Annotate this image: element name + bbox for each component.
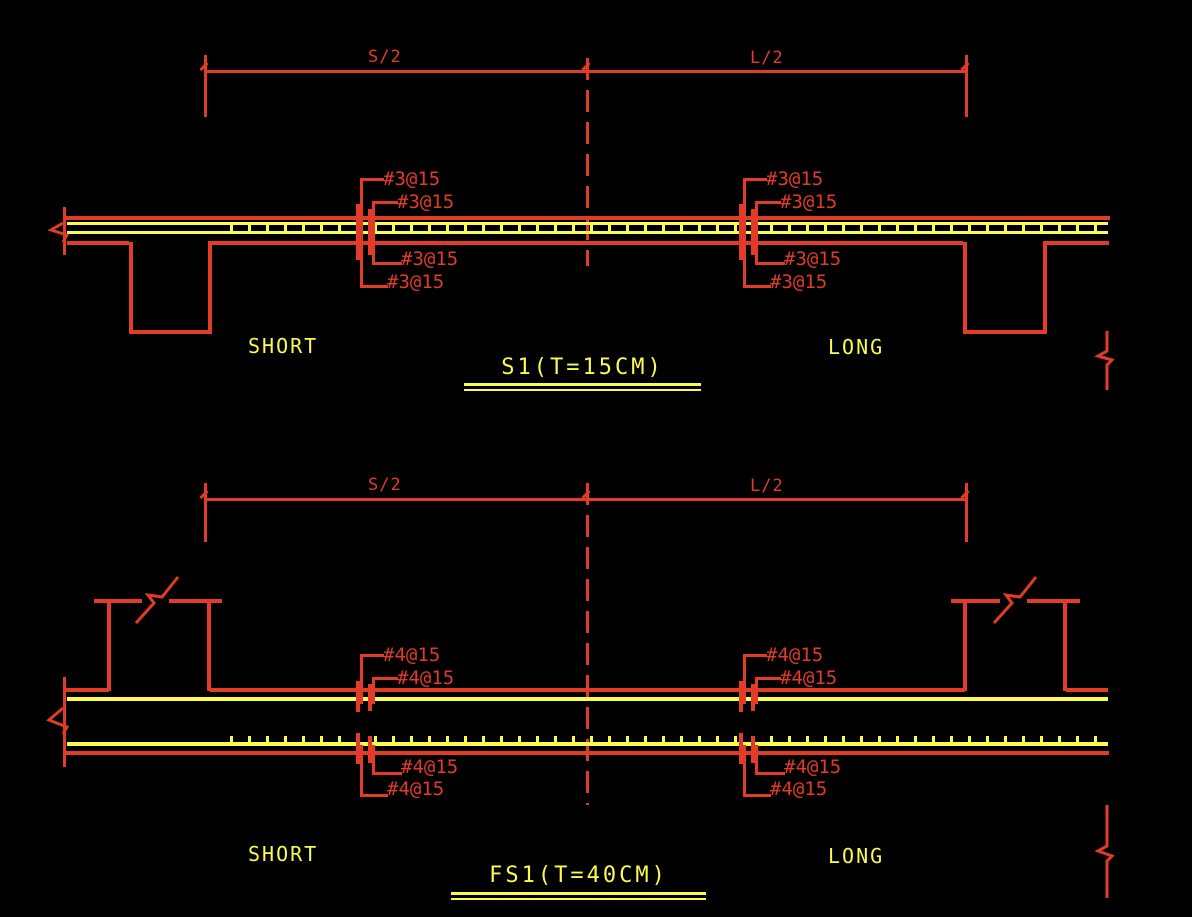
detail-title: FS1(T=40CM)	[452, 864, 705, 887]
slab-top-line	[64, 688, 109, 692]
rebar-label: #4@15	[397, 668, 454, 688]
dimension-label-short-span: S/2	[368, 476, 402, 494]
rebar-leader	[360, 745, 388, 797]
dimension-label-long-span: L/2	[750, 477, 784, 495]
rebar-label: #4@15	[780, 668, 837, 688]
slab-top-line	[210, 688, 965, 692]
rebar-leader	[755, 677, 781, 704]
region-label-short: SHORT	[248, 844, 318, 865]
cad-drawing-canvas: S/2 L/2 #	[0, 0, 1192, 917]
break-symbol	[134, 575, 180, 625]
slab-bottom-line	[64, 751, 1109, 755]
title-underline	[451, 892, 706, 895]
rebar-leader	[743, 745, 771, 797]
rebar-label: #4@15	[784, 757, 841, 777]
title-underline	[451, 898, 706, 900]
rebar-label: #4@15	[770, 779, 827, 799]
centerline	[586, 483, 589, 805]
wall-edge	[207, 599, 211, 691]
rebar-leader	[372, 677, 398, 704]
detail-fs1: S/2 L/2	[0, 0, 1192, 917]
slab-top-line	[1066, 688, 1108, 692]
break-symbol	[48, 706, 72, 736]
wall-edge	[1063, 599, 1067, 691]
rebar-bottom-line	[67, 742, 1108, 746]
rebar-label: #4@15	[766, 645, 823, 665]
region-label-long: LONG	[828, 846, 884, 867]
rebar-label: #4@15	[387, 779, 444, 799]
rebar-label: #4@15	[383, 645, 440, 665]
rebar-top-line	[67, 697, 1108, 701]
rebar-label: #4@15	[401, 757, 458, 777]
wall-edge	[107, 599, 111, 691]
break-symbol	[992, 575, 1038, 625]
wall-edge	[963, 599, 967, 691]
break-symbol	[1096, 805, 1120, 899]
